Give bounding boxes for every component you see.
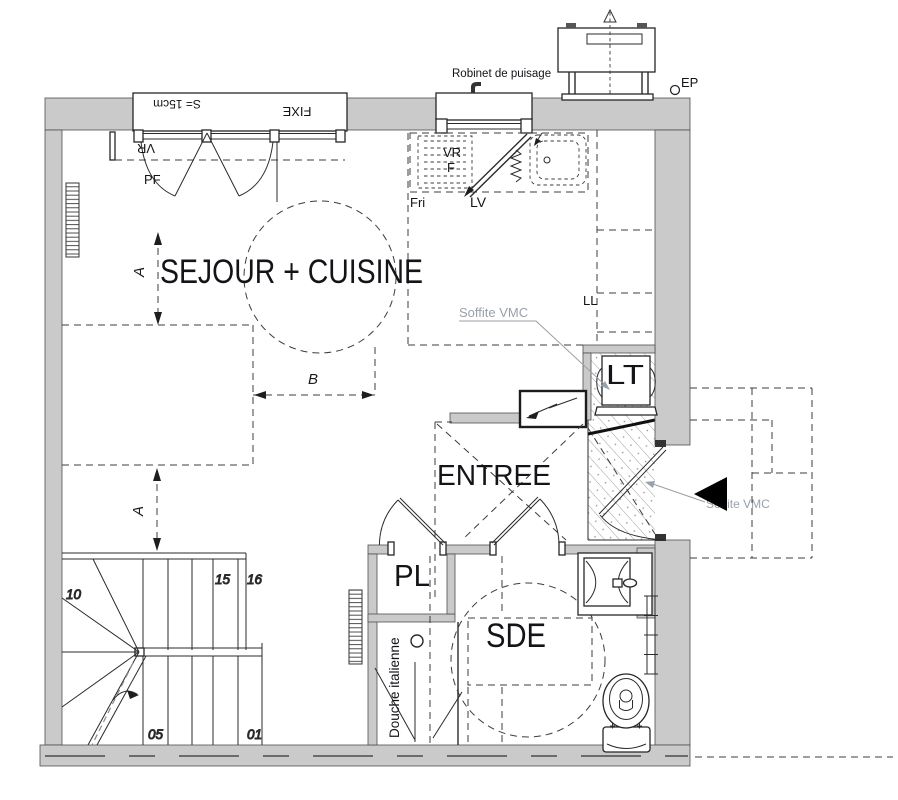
room-label-lt: LT [606,359,644,390]
electrical-panel [520,391,586,427]
stair-number-16: 16 [247,572,263,587]
stair-number-10: 10 [66,587,82,602]
fri-label: Fri [410,195,425,210]
radiator-sejour [66,183,79,257]
vr-left-label: VR [137,141,155,156]
dim-b: B [308,371,318,388]
window-sejour: S= 15cm FIXE VR PF [110,93,347,202]
soffite-vmc-kitchen-label: Soffite VMC [459,305,528,320]
room-label-sde: SDE [486,617,546,655]
fixe-label: FIXE [282,104,311,119]
kitchen-fittings: VR F LV Fri LL [408,130,655,345]
window-sill-label: S= 15cm [153,97,201,111]
walking-line [92,663,133,745]
washbasin [578,553,652,615]
exterior-dashed-structures [690,388,893,757]
dim-a-upper: A [131,267,148,278]
pf-label: PF [144,172,161,187]
room-label-entree: ENTREE [437,460,551,492]
entree-room: ENTREE [435,422,583,600]
floor-plan-canvas: S= 15cm FIXE VR PF Robinet de puisage [0,0,898,800]
pl-door-leaf [398,498,445,545]
entry-door-jamb-top [655,440,666,447]
floor-plan: S= 15cm FIXE VR PF Robinet de puisage [0,0,898,800]
f-label: F [447,160,455,175]
shower-valve-icon [411,635,423,647]
ep-downpipe-icon [671,86,680,95]
shower: Douche italienne [375,622,462,745]
faucet-icon [471,82,481,93]
stair-number-01: 01 [247,727,262,742]
radiator-entree [349,590,362,664]
dim-a-lower: A [130,506,147,517]
outdoor-unit: EP [558,10,698,100]
douche-italienne-label: Douche italienne [387,637,402,738]
pl-room: PL [394,558,430,593]
sejour-room: SEJOUR + CUISINE [62,201,423,465]
room-label-sejour-cuisine: SEJOUR + CUISINE [160,253,423,291]
stair-number-05: 05 [148,727,164,742]
stair-number-15: 15 [215,572,231,587]
staircase: 10 15 16 05 01 [62,553,263,745]
toilet [603,674,650,752]
sde-door-leaf [492,497,540,545]
ep-label: EP [681,75,698,90]
vr-kitchen-label: VR [443,145,461,160]
room-label-pl: PL [394,558,430,593]
ll-label: LL [583,293,597,308]
basin-tap-icon [624,579,637,587]
robinet-de-puisage-label: Robinet de puisage [452,68,551,80]
lv-label: LV [470,194,487,210]
sink-tap-lines [466,134,531,197]
